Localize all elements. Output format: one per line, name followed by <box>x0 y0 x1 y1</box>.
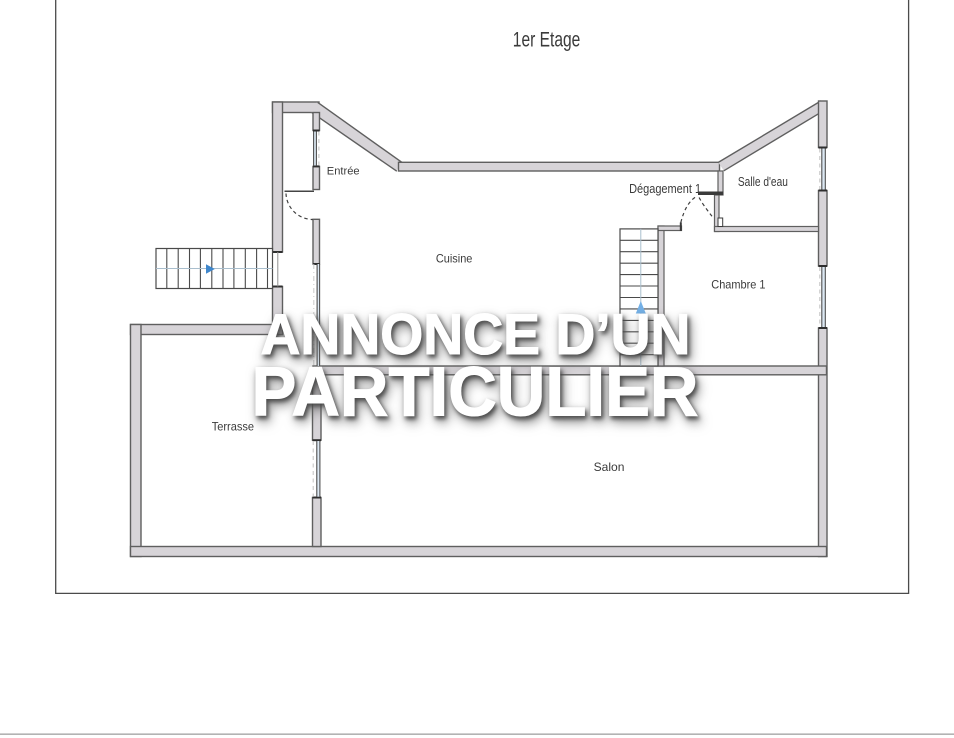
svg-text:Salon: Salon <box>594 460 625 474</box>
svg-text:Terrasse: Terrasse <box>212 420 255 434</box>
svg-text:Chambre 1: Chambre 1 <box>711 278 765 292</box>
svg-text:1er Etage: 1er Etage <box>513 28 581 51</box>
svg-text:Dégagement 1: Dégagement 1 <box>629 182 701 196</box>
svg-text:Salle d'eau: Salle d'eau <box>738 175 788 189</box>
svg-text:PARTICULIER: PARTICULIER <box>252 353 699 431</box>
svg-text:Cuisine: Cuisine <box>436 252 473 265</box>
svg-text:Entrée: Entrée <box>327 166 360 178</box>
